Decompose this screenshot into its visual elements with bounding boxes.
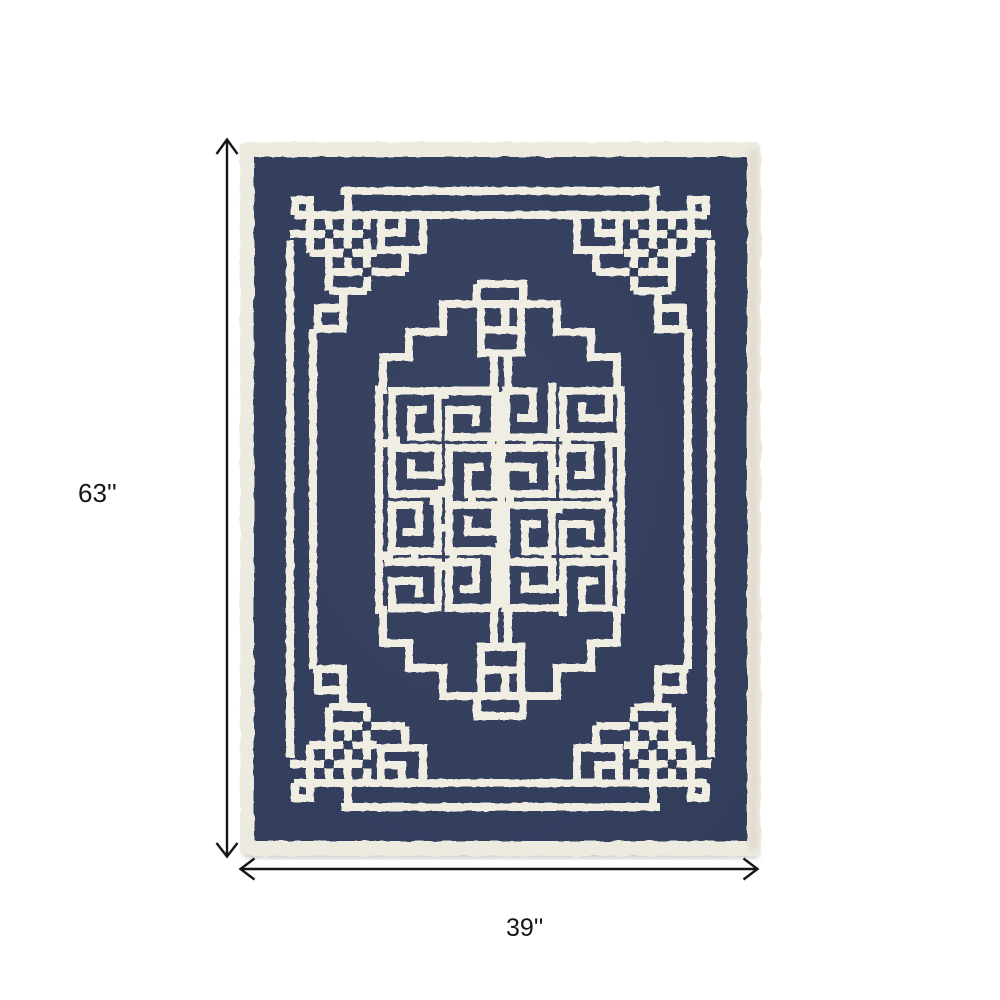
svg-text:39'': 39'' [506, 914, 543, 942]
svg-text:63'': 63'' [78, 478, 117, 508]
